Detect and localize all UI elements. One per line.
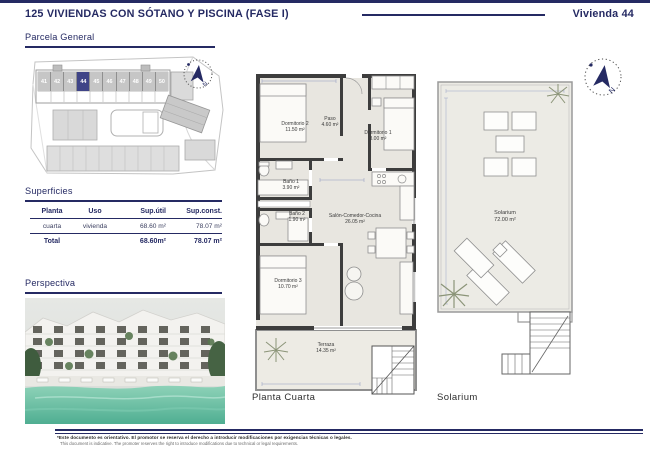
total-label: Total [30, 238, 74, 245]
unit-cell-43: 43 [64, 72, 77, 91]
unit-cell-45: 45 [90, 72, 103, 91]
table-header-row: Planta Uso Sup.útil Sup.const. [30, 204, 222, 218]
footer-rule [55, 429, 643, 431]
footer-rule-thin [55, 433, 643, 434]
total-sup-const: 78.07 m² [166, 238, 222, 245]
col-header-sup-const: Sup.const. [166, 208, 222, 215]
unit-cell-44-highlighted: 44 [77, 72, 90, 91]
page-title: 125 VIVIENDAS CON SÓTANO Y PISCINA (FASE… [25, 8, 289, 20]
col-header-sup-util: Sup.útil [116, 208, 166, 215]
superficies-table: Planta Uso Sup.útil Sup.const. cuarta vi… [30, 204, 222, 248]
compass-icon: N [180, 56, 216, 92]
section-heading-superficies: Superficies [25, 186, 73, 196]
top-frame-rule [0, 0, 650, 3]
unit-cell-46: 46 [103, 72, 116, 91]
staircase [372, 346, 414, 394]
plan-caption-planta-cuarta: Planta Cuarta [252, 392, 315, 403]
solarium-plan-drawing [430, 58, 630, 398]
unit-cell-42: 42 [51, 72, 64, 91]
section-heading-parcela: Parcela General [25, 32, 94, 42]
cell-sup-const: 78.07 m² [166, 223, 222, 230]
table-total-row: Total 68.60m² 78.07 m² [30, 234, 222, 248]
cell-planta: cuarta [30, 223, 74, 230]
perspectiva-heading-underline [25, 292, 222, 294]
compass-north-label: N [607, 85, 617, 95]
col-header-planta: Planta [30, 208, 74, 215]
table-row: cuarta vivienda 68.60 m² 78.07 m² [30, 219, 222, 233]
footer-disclaimer-es: *Este documento es orientativo. El promo… [57, 435, 352, 440]
staircase [502, 312, 570, 374]
unit-cell-47: 47 [117, 72, 130, 91]
unit-cell-41: 41 [38, 72, 51, 91]
total-sup-util: 68.60m² [116, 238, 166, 245]
site-plan-unit-row: 41 42 43 44 45 46 47 48 49 50 [38, 72, 168, 91]
perspective-render-image [25, 298, 225, 424]
floor-plan-drawing [250, 58, 425, 408]
footer-disclaimer-en: This document is indicative. The promote… [60, 441, 298, 446]
unit-title: Vivienda 44 [556, 8, 634, 20]
unit-cell-49: 49 [143, 72, 156, 91]
parcela-heading-underline [25, 46, 215, 48]
cell-sup-util: 68.60 m² [116, 223, 166, 230]
unit-cell-50: 50 [156, 72, 168, 91]
superficies-heading-underline [25, 200, 222, 202]
plan-caption-solarium: Solarium [437, 392, 478, 403]
section-heading-perspectiva: Perspectiva [25, 278, 75, 288]
brochure-page: 125 VIVIENDAS CON SÓTANO Y PISCINA (FASE… [0, 0, 650, 450]
unit-cell-48: 48 [130, 72, 143, 91]
header-divider-line [362, 14, 545, 16]
compass-icon: N [580, 54, 626, 100]
col-header-uso: Uso [74, 208, 116, 215]
cell-uso: vivienda [74, 223, 116, 230]
